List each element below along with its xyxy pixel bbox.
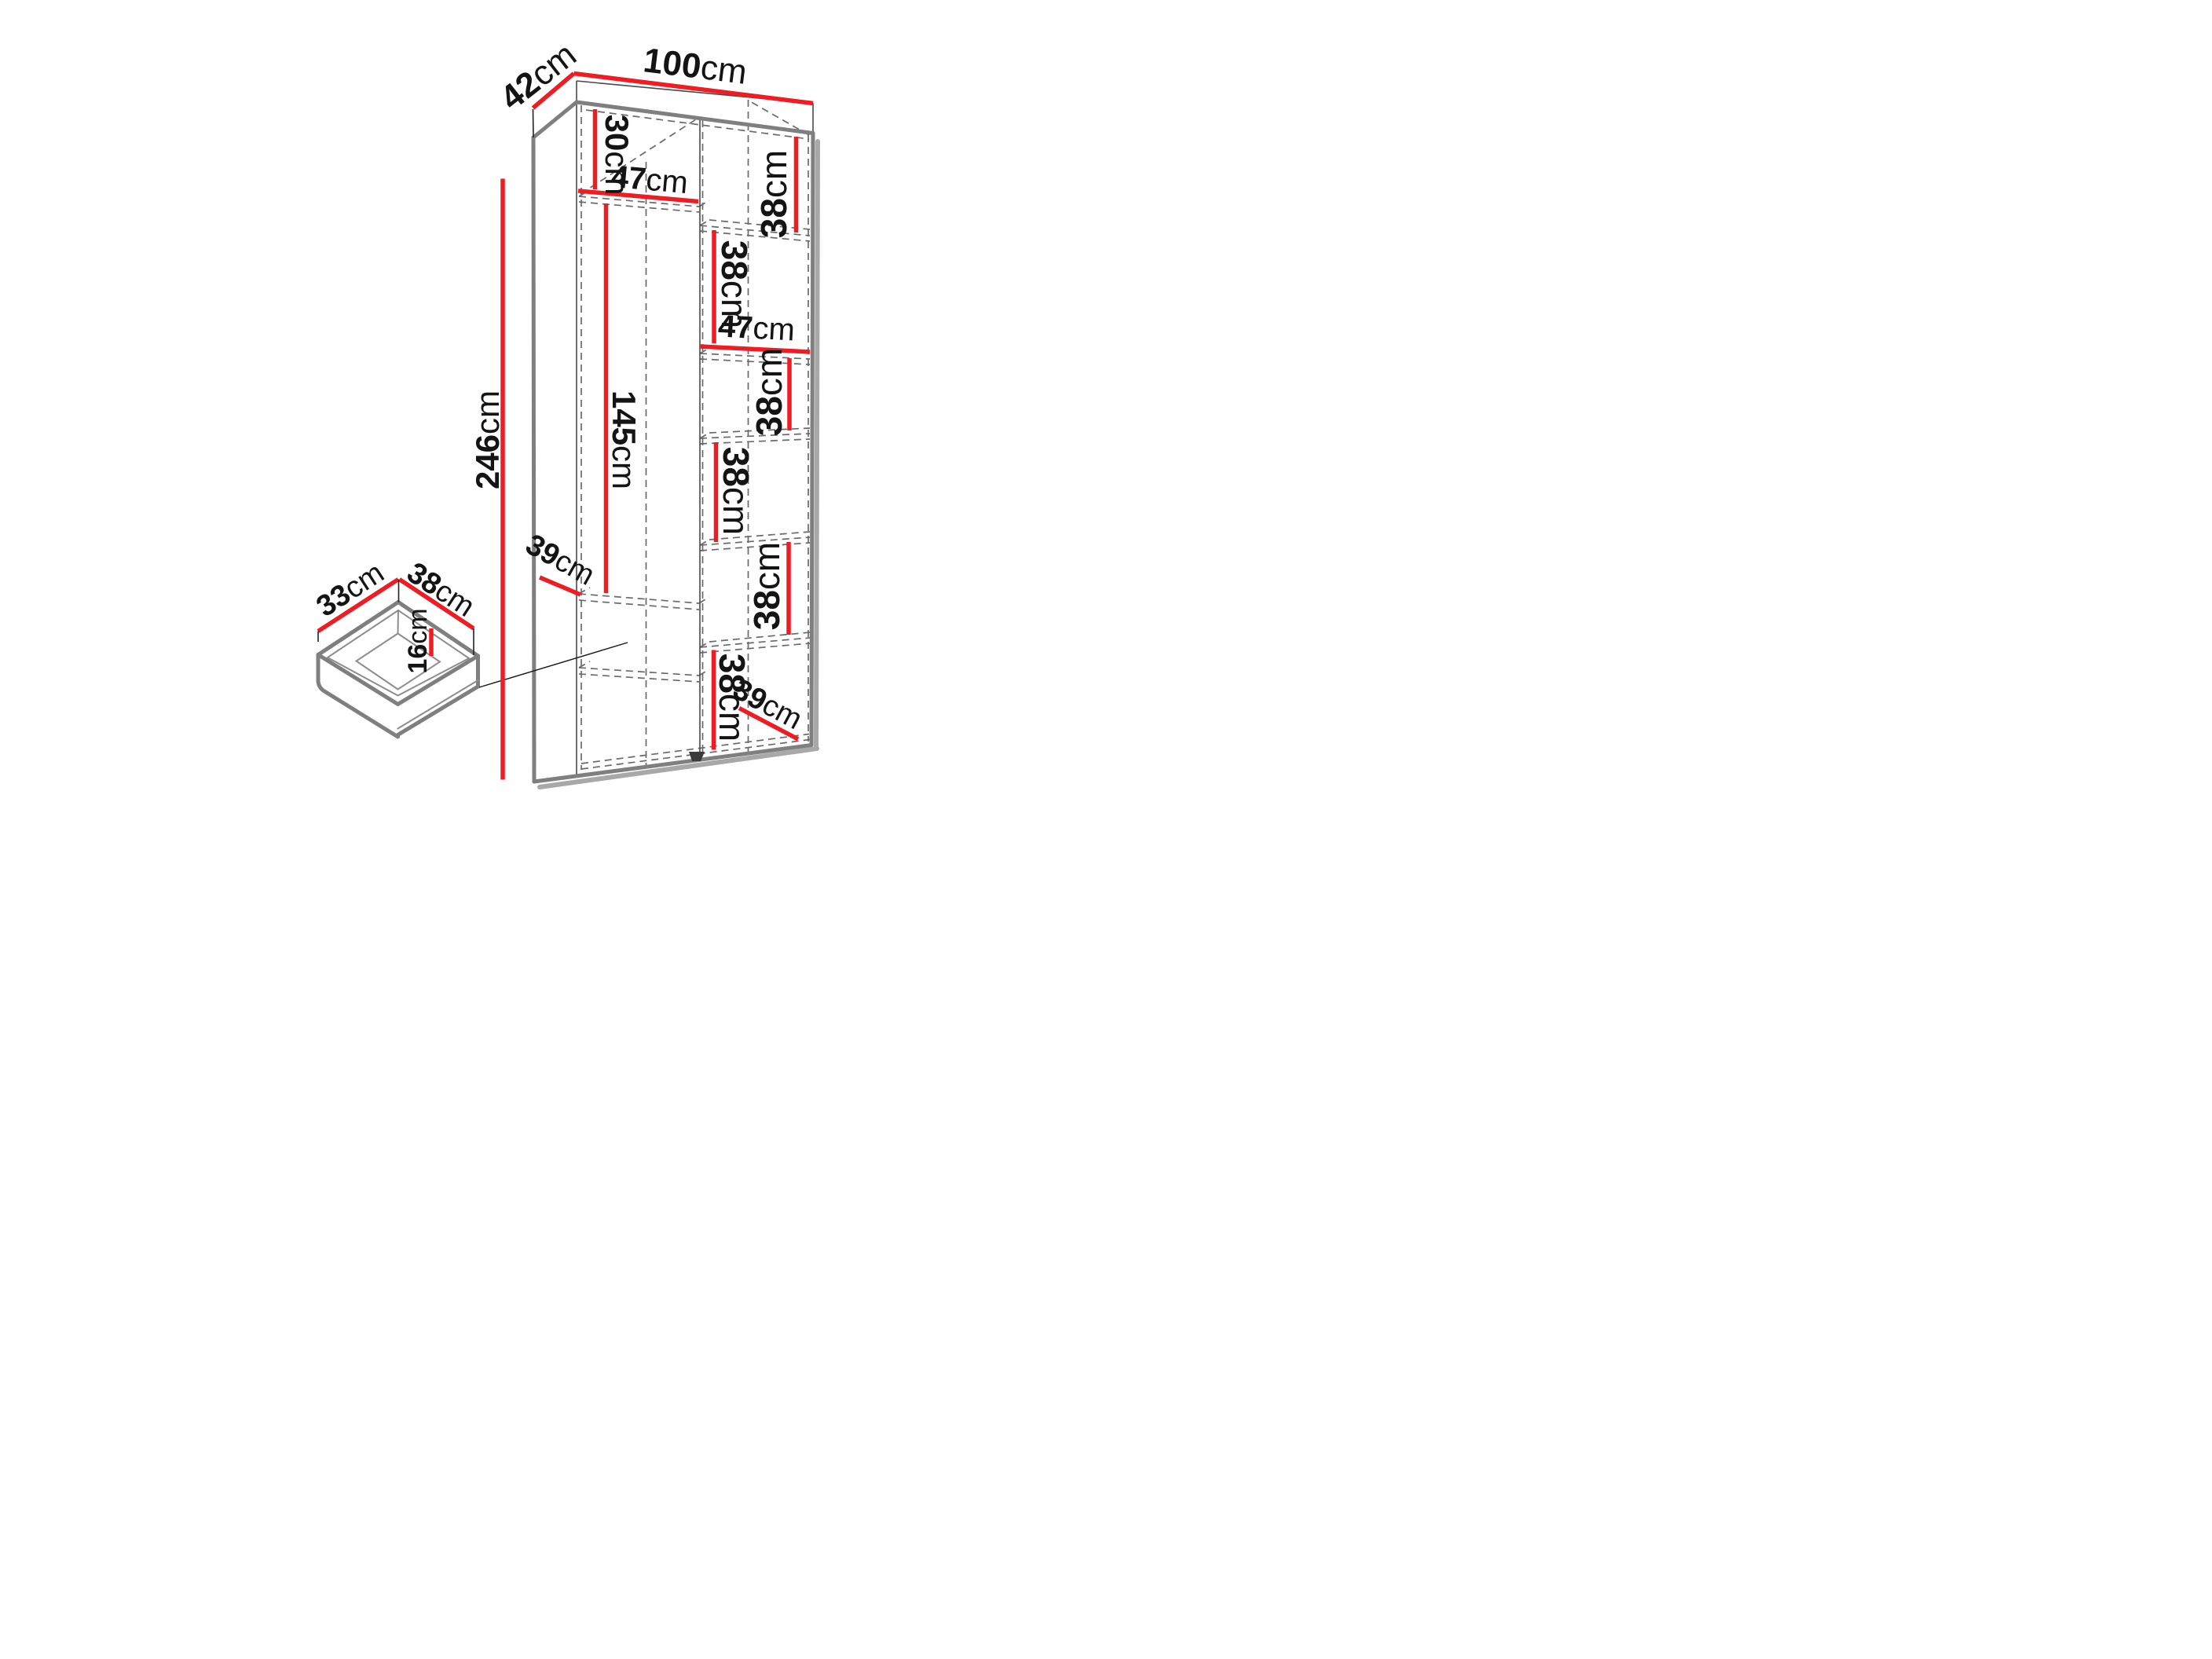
label-hanging-145cm: 145cm — [606, 390, 643, 489]
label-comp5-38cm: 38cm — [746, 542, 787, 631]
label-shelf-width-right-47cm: 47cm — [717, 309, 796, 347]
label-comp3-38cm: 38cm — [749, 348, 789, 437]
label-shelf-width-left-47cm: 47cm — [610, 159, 689, 200]
furniture-dimension-diagram: 100cm 42cm 246cm 30cm 47cm 145cm 39cm 38… — [0, 0, 1106, 829]
drawer-diagram — [318, 602, 478, 738]
label-drawer-height-16cm: 16cm — [403, 608, 433, 673]
label-comp1-38cm: 38cm — [753, 150, 794, 239]
label-height-246cm: 246cm — [469, 390, 506, 489]
label-comp4-38cm: 38cm — [716, 447, 756, 536]
